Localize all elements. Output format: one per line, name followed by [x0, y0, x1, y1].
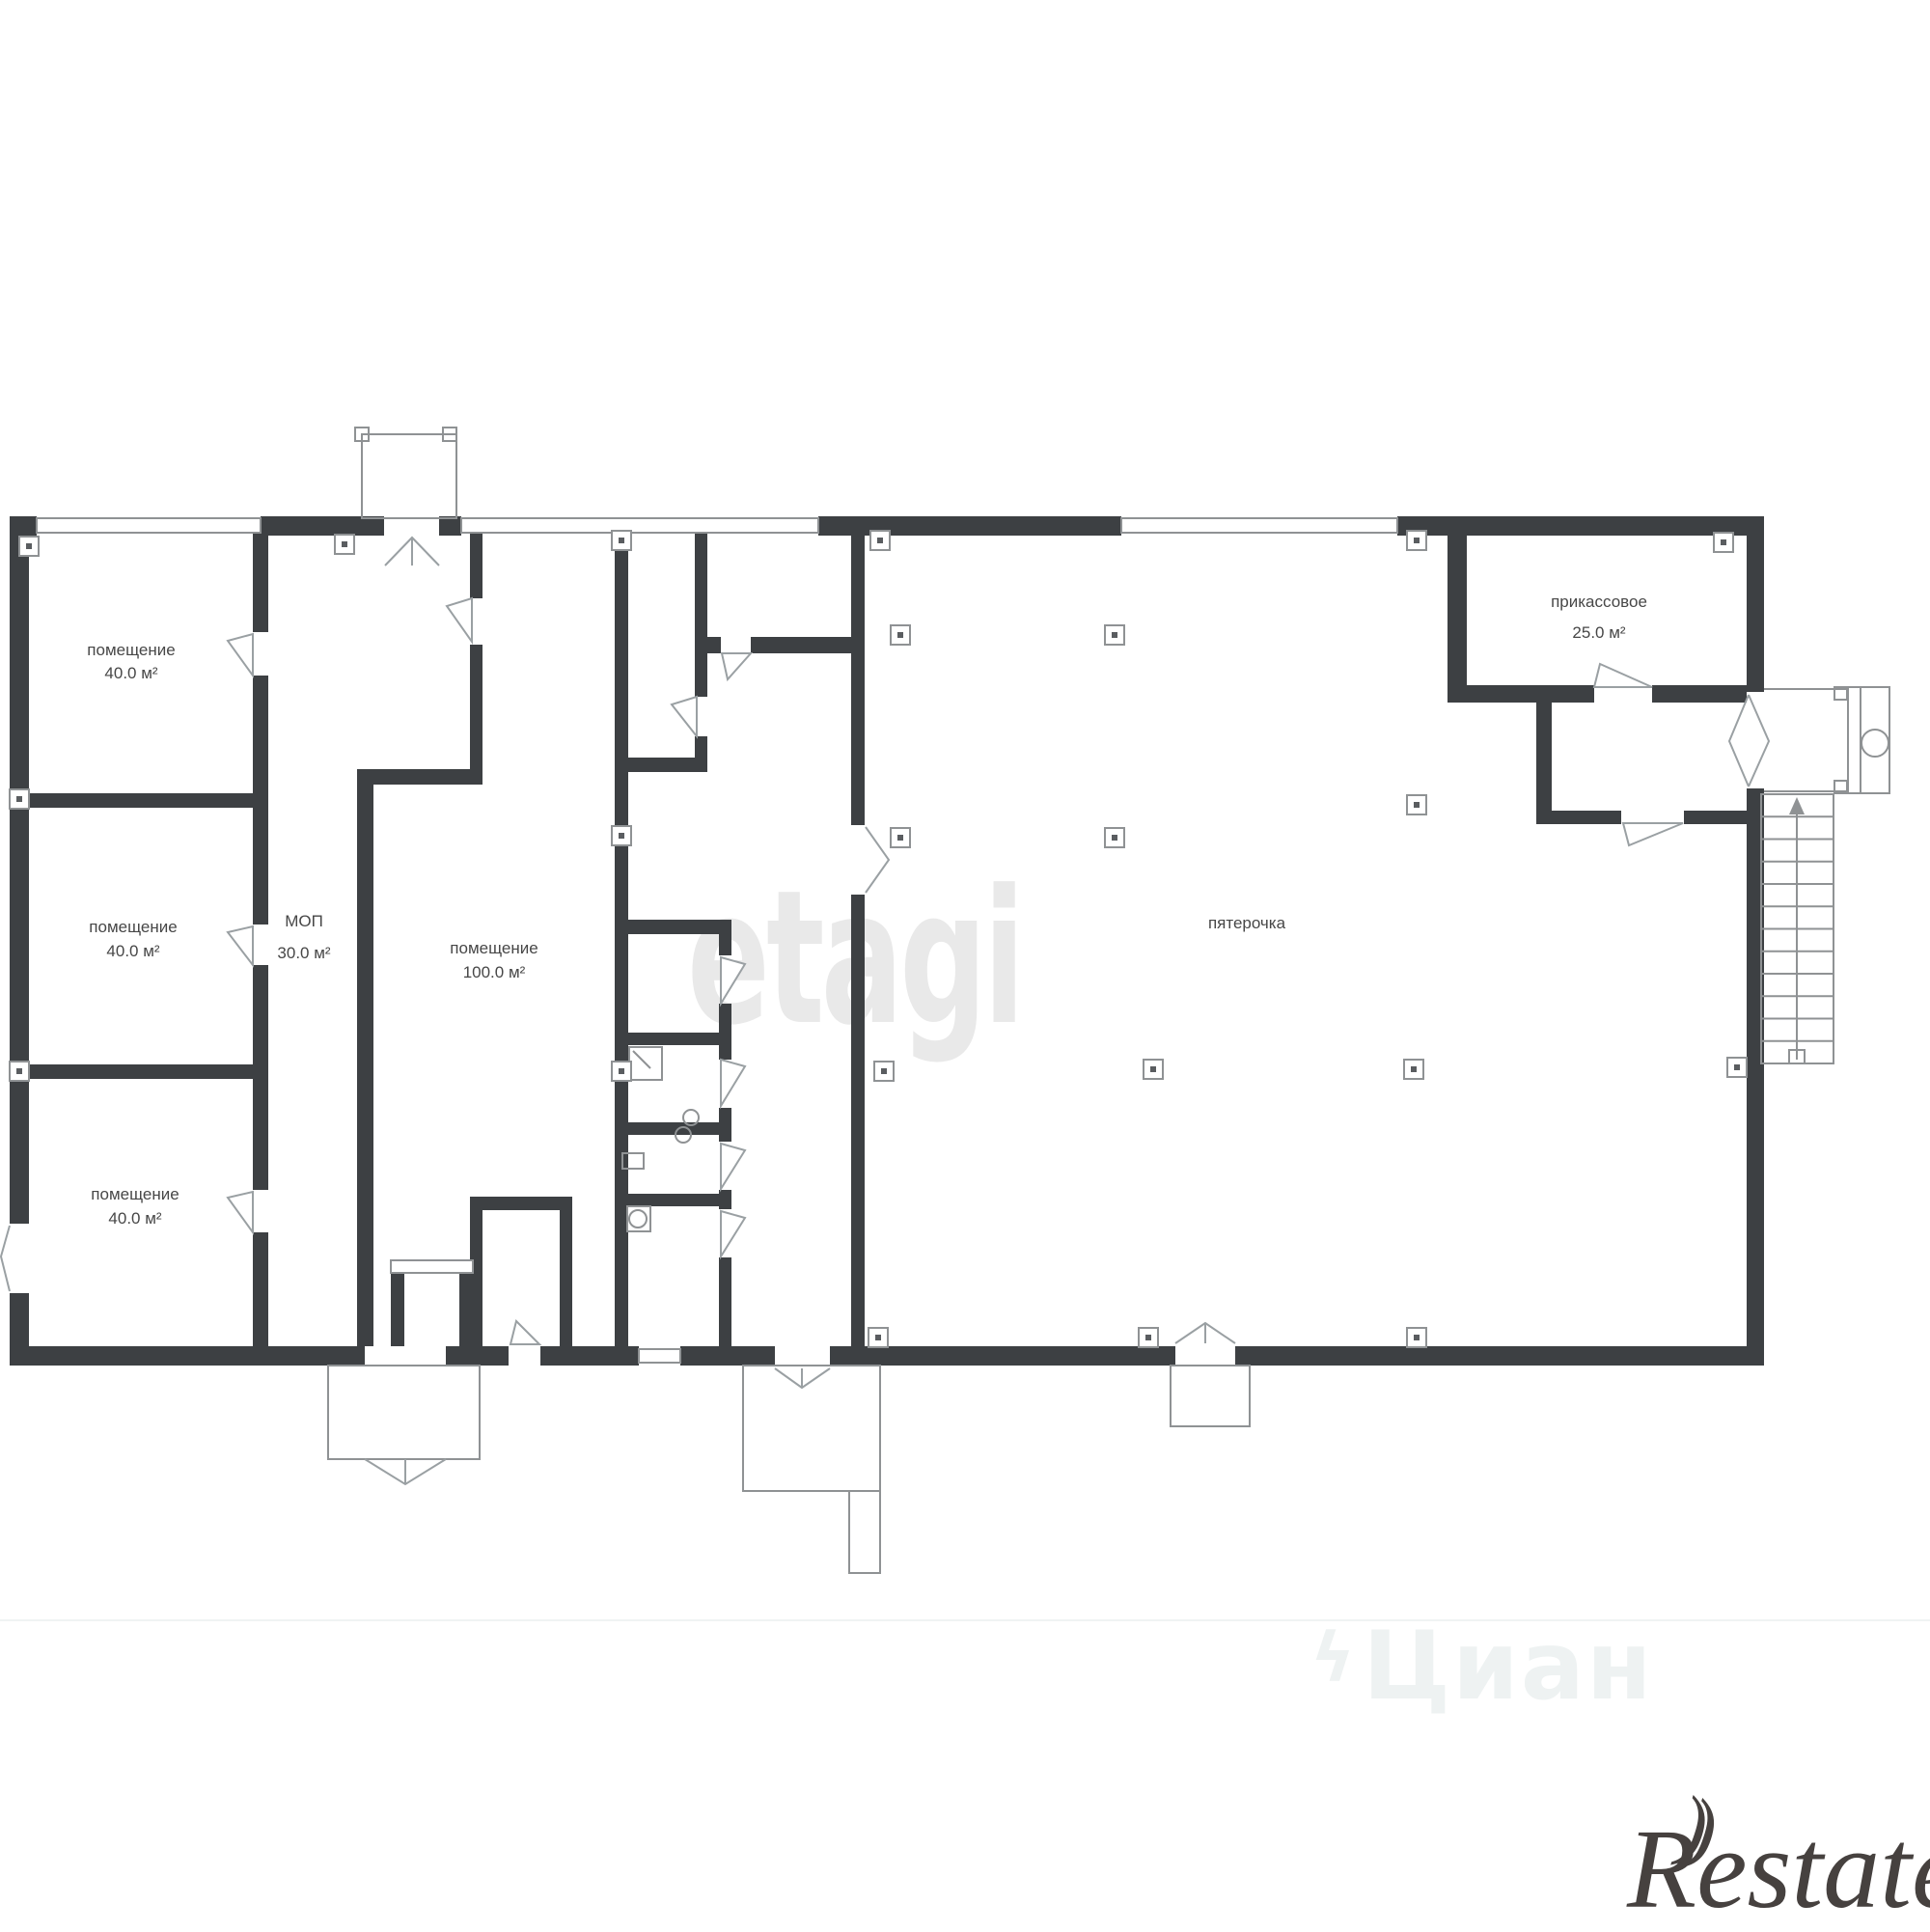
column-marker-dot	[1112, 835, 1117, 841]
door-swing	[1623, 823, 1683, 845]
wall	[10, 516, 29, 1224]
wall	[357, 769, 482, 785]
door-swing	[228, 1192, 253, 1232]
room-label-room-40-2: помещение	[89, 918, 177, 936]
column-marker-dot	[1112, 632, 1117, 638]
room-area-room-40-2: 40.0 м²	[106, 942, 159, 960]
floor-plan-svg: помещение40.0 м²помещение40.0 м²помещени…	[0, 0, 1930, 1930]
window	[639, 1349, 680, 1363]
column-marker-dot	[1721, 539, 1726, 545]
window	[461, 518, 818, 533]
fixture-circle	[1861, 730, 1889, 757]
floor-plan: etagi ϟЦиан ))Restate помещение40.0 м²по…	[0, 0, 1930, 1930]
wall	[470, 533, 482, 598]
room-area-room-prikassovoe: 25.0 м²	[1572, 623, 1625, 642]
porch-outline	[1848, 687, 1889, 793]
wall	[470, 645, 482, 769]
column-marker-dot	[16, 796, 22, 802]
door-swing	[228, 926, 253, 965]
wall	[695, 736, 707, 772]
column-marker-dot	[1414, 1335, 1420, 1340]
wall	[707, 637, 721, 653]
thin-line	[633, 1051, 650, 1068]
window	[391, 1260, 473, 1273]
door-swing	[510, 1321, 539, 1344]
wall	[1747, 516, 1764, 692]
porch-outline	[849, 1491, 880, 1573]
column-marker-dot	[1411, 1066, 1417, 1072]
wall	[540, 1346, 639, 1366]
door-swing	[722, 653, 751, 679]
column-marker-dot	[619, 833, 624, 839]
wall	[446, 1346, 509, 1366]
column-marker-dot	[1414, 802, 1420, 808]
wall	[695, 533, 707, 697]
room-label-room-mop: МОП	[285, 912, 323, 930]
wall	[27, 793, 259, 808]
wall	[751, 637, 851, 653]
column-marker-dot	[26, 543, 32, 549]
wall	[470, 1197, 572, 1210]
room-area-room-40-1: 40.0 м²	[104, 664, 157, 682]
wall	[391, 1274, 404, 1346]
room-area-room-mop: 30.0 м²	[277, 944, 330, 962]
door-swing	[228, 634, 253, 676]
column-marker-dot	[1145, 1335, 1151, 1340]
door-swing	[721, 957, 745, 1004]
stair-direction-arrow	[1789, 797, 1805, 814]
column-marker-dot	[877, 538, 883, 543]
fixture-circle	[629, 1210, 647, 1228]
door-swing	[672, 697, 697, 736]
wall	[560, 1197, 572, 1346]
door-swing	[721, 1060, 745, 1106]
wall	[1536, 703, 1552, 823]
column-marker-dot	[881, 1068, 887, 1074]
wall	[459, 1274, 473, 1346]
wall	[615, 920, 731, 934]
column-marker-dot	[1414, 538, 1420, 543]
wall	[1447, 533, 1467, 703]
porch-outline	[743, 1366, 880, 1491]
wall	[1447, 685, 1594, 703]
wall	[851, 533, 865, 825]
wall	[1536, 811, 1621, 824]
wall	[627, 1194, 731, 1206]
wall	[627, 1033, 731, 1045]
room-label-room-pyaterochka: пятерочка	[1208, 914, 1286, 932]
column-marker-dot	[619, 538, 624, 543]
room-area-room-100: 100.0 м²	[463, 963, 526, 981]
door-swing	[721, 1144, 745, 1189]
room-label-room-40-1: помещение	[87, 641, 175, 659]
wall	[253, 533, 268, 632]
room-label-room-prikassovoe: прикассовое	[1551, 593, 1647, 611]
wall	[1652, 685, 1747, 703]
column-marker-dot	[875, 1335, 881, 1340]
porch-outline	[1171, 1366, 1250, 1426]
wall	[357, 769, 373, 1346]
wall	[1235, 1346, 1764, 1366]
door-swing	[866, 827, 889, 893]
column-marker-dot	[897, 835, 903, 841]
room-label-room-40-3: помещение	[91, 1185, 179, 1203]
wall	[615, 533, 628, 1346]
window	[1121, 518, 1397, 533]
column-marker-dot	[619, 1068, 624, 1074]
column-marker-dot	[16, 1068, 22, 1074]
wall	[253, 1232, 268, 1346]
door-swing	[1594, 664, 1652, 687]
column-marker-dot	[342, 541, 347, 547]
door-swing	[1749, 695, 1769, 787]
wall	[627, 758, 695, 772]
wall	[719, 920, 731, 955]
door-swing	[721, 1211, 745, 1256]
wall	[680, 1346, 775, 1366]
room-label-room-100: помещение	[450, 939, 538, 957]
room-area-room-40-3: 40.0 м²	[108, 1209, 161, 1228]
window	[37, 518, 261, 533]
door-swing	[1, 1226, 10, 1291]
door-swing	[1729, 695, 1749, 787]
wall	[830, 1346, 1175, 1366]
wall	[719, 1257, 731, 1346]
column-marker-dot	[1150, 1066, 1156, 1072]
wall	[27, 1064, 259, 1079]
wall	[851, 895, 865, 1346]
wall	[719, 1004, 731, 1060]
wall	[1684, 811, 1747, 824]
wall	[10, 1346, 365, 1366]
porch-outline	[328, 1366, 480, 1459]
porch-outline	[362, 434, 456, 518]
door-swing	[447, 598, 472, 642]
column-marker-dot	[1734, 1064, 1740, 1070]
column-marker-dot	[897, 632, 903, 638]
